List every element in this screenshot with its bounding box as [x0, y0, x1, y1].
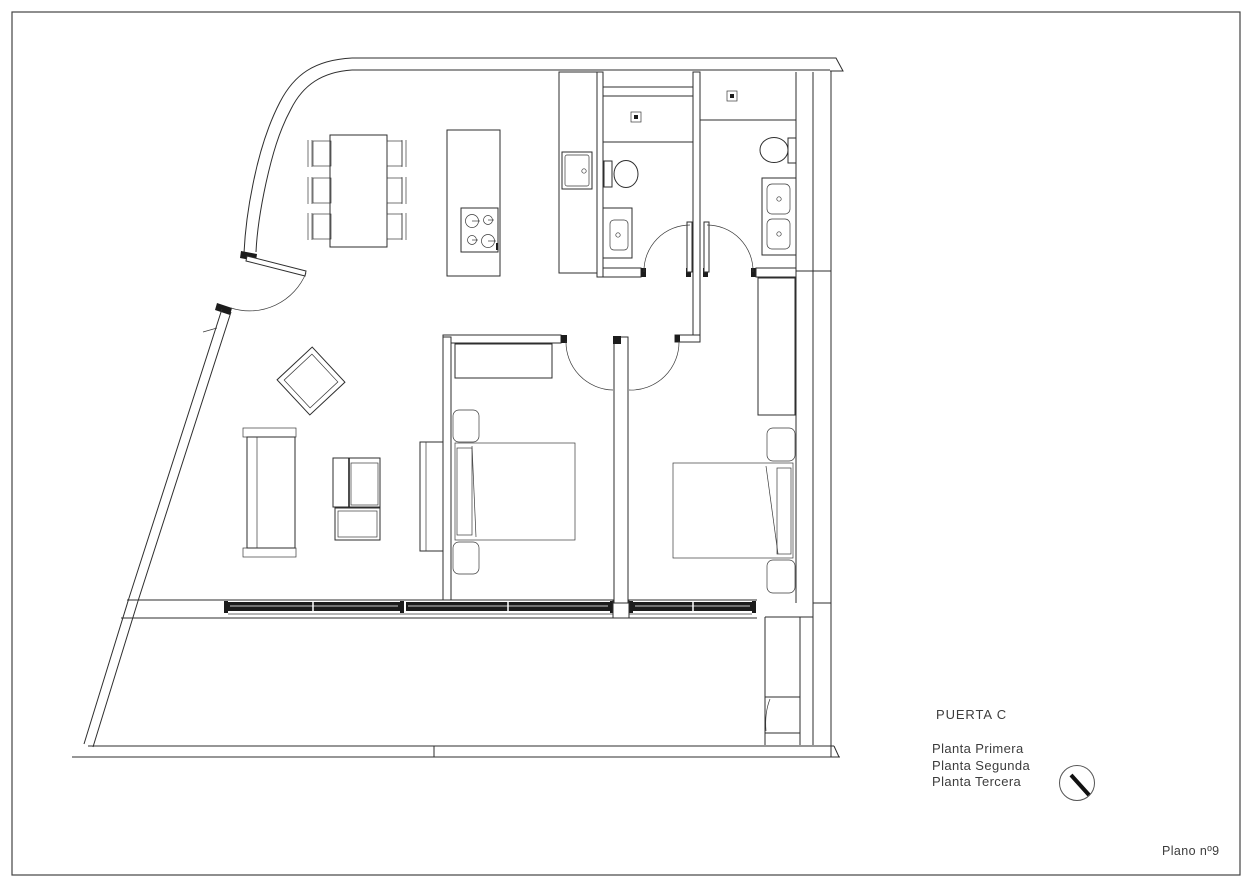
floor-plan-svg	[0, 0, 1252, 887]
door-swing-arc	[566, 341, 613, 390]
toilet-1	[604, 161, 612, 187]
coffee-table	[333, 458, 380, 540]
bedroom-partition	[614, 337, 628, 603]
bedroom-1	[453, 344, 575, 574]
door-swing-arc	[644, 225, 690, 272]
living-room	[243, 347, 443, 557]
sheet-number: Plano nº9	[1162, 844, 1220, 858]
bathroom-1	[597, 72, 700, 342]
orientation-dial-icon	[1060, 766, 1095, 801]
terrace-edge	[72, 617, 840, 757]
bed-2	[673, 463, 793, 558]
sofa	[243, 428, 296, 557]
kitchen	[447, 72, 597, 276]
door-leaf	[704, 222, 709, 272]
floor-labels: Planta Primera Planta Segunda Planta Ter…	[932, 741, 1030, 791]
floor-label-tercera: Planta Tercera	[932, 774, 1030, 791]
nightstand	[767, 560, 795, 593]
closet-1	[455, 344, 552, 378]
floor-label-primera: Planta Primera	[932, 741, 1030, 758]
toilet-2	[788, 138, 796, 163]
door-leaf	[687, 222, 692, 272]
south-window-wall	[121, 600, 757, 618]
bed-1	[455, 443, 575, 540]
door-swing-arc	[231, 273, 306, 311]
wardrobe-2	[758, 278, 795, 415]
door-leaf	[246, 256, 306, 276]
unit-label: PUERTA C	[936, 707, 1007, 722]
nightstand	[453, 542, 479, 574]
entry-door	[231, 256, 306, 311]
dining-set	[308, 135, 406, 247]
bathroom-2	[700, 91, 796, 277]
bed-headboard	[777, 468, 791, 554]
nightstand	[453, 410, 479, 442]
door-swing-arc	[707, 225, 753, 272]
drawing-sheet: PUERTA C Planta Primera Planta Segunda P…	[0, 0, 1252, 887]
door-swing-arc	[629, 341, 679, 390]
door-jamb-mark	[215, 303, 232, 315]
kitchen-island	[447, 130, 500, 276]
sliding-window-1	[228, 602, 400, 611]
bedroom-2	[673, 278, 795, 593]
kitchen-sink	[562, 152, 592, 189]
bedroom-walls	[443, 335, 700, 603]
tv-unit	[420, 442, 443, 551]
bed-headboard	[457, 448, 472, 535]
floor-label-segunda: Planta Segunda	[932, 758, 1030, 775]
dining-table	[330, 135, 387, 247]
nightstand	[767, 428, 795, 461]
armchair	[277, 347, 345, 415]
